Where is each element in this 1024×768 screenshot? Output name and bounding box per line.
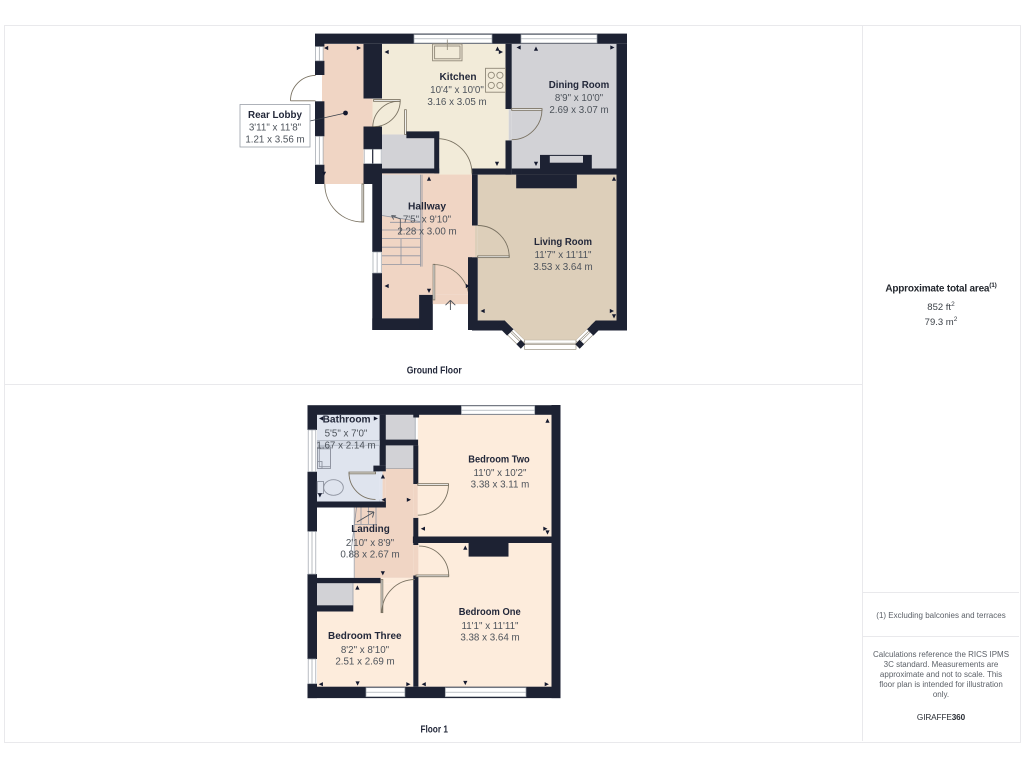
svg-text:Dining Room: Dining Room xyxy=(549,80,610,91)
svg-text:11'7" x 11'11": 11'7" x 11'11" xyxy=(535,250,593,261)
svg-text:Bedroom Two: Bedroom Two xyxy=(468,455,530,466)
svg-text:2'10" x 8'9": 2'10" x 8'9" xyxy=(346,538,395,549)
svg-text:Bedroom One: Bedroom One xyxy=(459,607,521,618)
svg-text:3'11" x 11'8": 3'11" x 11'8" xyxy=(249,123,302,134)
svg-text:11'1" x 11'11": 11'1" x 11'11" xyxy=(462,621,520,632)
svg-text:1.67 x 2.14 m: 1.67 x 2.14 m xyxy=(316,440,375,451)
svg-text:3.38 x 3.64 m: 3.38 x 3.64 m xyxy=(460,632,519,643)
svg-text:3.16 x 3.05 m: 3.16 x 3.05 m xyxy=(427,97,486,108)
svg-text:7'5" x 9'10": 7'5" x 9'10" xyxy=(403,215,452,226)
svg-text:1.21 x 3.56 m: 1.21 x 3.56 m xyxy=(245,134,304,145)
svg-text:Floor 1: Floor 1 xyxy=(420,724,448,735)
svg-text:0.88 x 2.67 m: 0.88 x 2.67 m xyxy=(340,549,399,560)
svg-text:3.38 x 3.11 m: 3.38 x 3.11 m xyxy=(471,479,530,490)
svg-text:Hallway: Hallway xyxy=(408,202,446,213)
svg-text:11'0" x 10'2": 11'0" x 10'2" xyxy=(473,468,527,479)
svg-text:2.51 x 2.69 m: 2.51 x 2.69 m xyxy=(335,656,394,667)
svg-text:8'9" x 10'0": 8'9" x 10'0" xyxy=(555,93,604,104)
svg-text:Bathroom: Bathroom xyxy=(323,415,371,426)
svg-text:Living Room: Living Room xyxy=(534,237,592,248)
svg-text:2.69 x 3.07 m: 2.69 x 3.07 m xyxy=(549,105,608,116)
svg-text:Rear Lobby: Rear Lobby xyxy=(248,110,302,121)
svg-text:8'2" x 8'10": 8'2" x 8'10" xyxy=(341,645,390,656)
svg-text:3.53 x 3.64 m: 3.53 x 3.64 m xyxy=(533,262,592,273)
svg-text:10'4" x 10'0": 10'4" x 10'0" xyxy=(430,85,484,96)
svg-text:Bedroom Three: Bedroom Three xyxy=(328,631,402,642)
svg-text:2.28 x 3.00 m: 2.28 x 3.00 m xyxy=(397,226,456,237)
svg-text:Ground Floor: Ground Floor xyxy=(407,366,462,377)
svg-text:5'5" x 7'0": 5'5" x 7'0" xyxy=(325,429,368,440)
svg-text:Kitchen: Kitchen xyxy=(440,72,477,83)
svg-text:Landing: Landing xyxy=(351,524,390,535)
